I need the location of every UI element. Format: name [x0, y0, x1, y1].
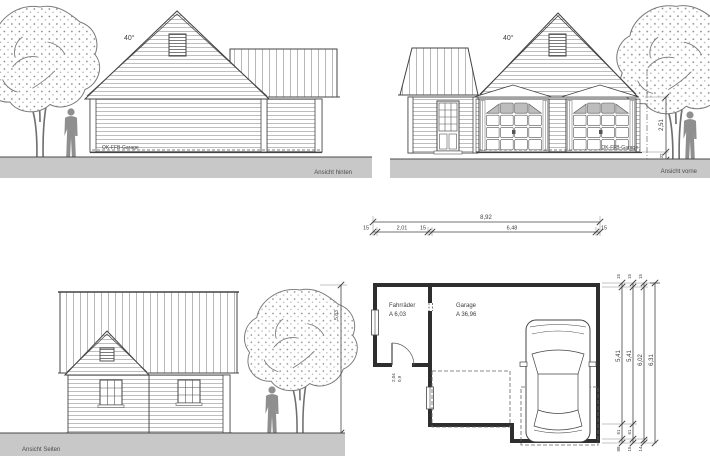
view-title: Ansicht hinten [314, 170, 352, 176]
plan-top-dimensions: 8,92 15 2,01 15 6,48 15 [363, 215, 607, 236]
side-building [58, 292, 239, 433]
dim-segment: 6,48 [507, 226, 518, 232]
floor-level-label: OK-FFB-Garage [601, 145, 638, 151]
roof-angle-label: 40° [503, 34, 514, 42]
gable-vent [549, 34, 566, 56]
room-area: A 36,96 [456, 312, 477, 318]
room-name: Garage [456, 303, 477, 309]
view-title: Ansicht Seiten [22, 447, 60, 453]
person-figure [683, 111, 696, 160]
person-figure [265, 386, 278, 435]
plinth-height-dim: 32 [659, 153, 664, 159]
roof-angle-label: 40° [124, 34, 135, 42]
wall-height-dim: 2,51 [659, 119, 665, 131]
room-area: A 6,03 [389, 312, 407, 318]
window [176, 380, 202, 406]
dim-segment: 15 [627, 446, 632, 452]
plan-window [372, 310, 379, 335]
dim-segment: 5,41 [627, 350, 633, 362]
side-elevation-view: 5,83 Ansicht Seiten [0, 282, 357, 456]
dim-segment: 6,02 [638, 354, 644, 366]
floor-plan-view: 2,04 0,9 Fahrräder A 6,03 Garage A 36,96 [363, 215, 660, 452]
plan-door-swing: 2,04 0,9 [391, 343, 414, 382]
annex-roof [400, 48, 478, 95]
gable-vent [169, 34, 186, 56]
front-building [398, 13, 642, 154]
dim-segment: 15 [420, 226, 426, 232]
dim-segment: 15 [616, 273, 621, 279]
dim-segment: 61 [627, 429, 632, 435]
tree-drawing [0, 6, 100, 157]
window [98, 380, 124, 408]
door-height-dim: 2,04 [391, 373, 396, 382]
entry-door [434, 101, 462, 154]
dim-segment: 2,01 [397, 226, 408, 232]
height-dim-value: 5,83 [334, 310, 340, 320]
rear-building [85, 11, 340, 153]
plan-window [427, 387, 434, 409]
view-title: Ansicht vorne [661, 169, 698, 175]
person-figure [64, 108, 77, 157]
dim-segment: 15 [627, 273, 632, 279]
architectural-drawing-sheet: 40° OK-FFB-Garage Ansicht hinten [0, 0, 710, 456]
floor-level-label: OK-FFB-Garage [102, 145, 139, 151]
annex-wall [267, 99, 322, 152]
dim-segment: 15 [601, 226, 607, 232]
rear-elevation-view: 40° OK-FFB-Garage Ansicht hinten [0, 6, 372, 178]
dim-segment: 6,31 [649, 354, 655, 366]
front-elevation-view: 40° OK-FFB-Garage 2,51 32 Ansicht vorne [390, 6, 710, 178]
total-width-dim: 8,92 [480, 215, 492, 221]
door-width-dim: 0,9 [397, 375, 402, 382]
room-name: Fahrräder [389, 303, 415, 309]
drawing-canvas: 40° OK-FFB-Garage Ansicht hinten [0, 0, 710, 456]
dim-segment: 15 [638, 273, 643, 279]
car-drawing [520, 320, 596, 442]
dim-segment: 14 [638, 446, 643, 452]
dim-segment: 5,41 [616, 350, 622, 362]
garage-door-left [479, 99, 549, 152]
dashed-outline [432, 371, 510, 427]
dim-segment: 88 [616, 446, 621, 452]
dim-segment: 15 [363, 226, 369, 232]
dim-segment: 61 [616, 429, 621, 435]
gable-vent [100, 348, 114, 361]
tree-drawing [244, 289, 357, 434]
plan-right-dimensions: 15 5,41 61 88 15 5,41 61 15 15 6,02 14 6… [602, 273, 660, 451]
interior-opening [429, 303, 433, 311]
